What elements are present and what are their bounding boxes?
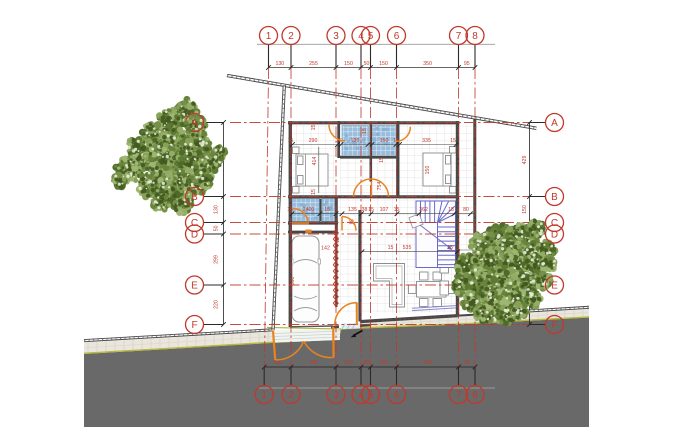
svg-text:350: 350 — [423, 360, 432, 366]
svg-text:220: 220 — [214, 300, 220, 309]
svg-text:255: 255 — [309, 360, 318, 366]
svg-text:15: 15 — [388, 245, 394, 251]
svg-text:15: 15 — [379, 157, 385, 163]
svg-text:8: 8 — [472, 31, 478, 42]
svg-text:B: B — [191, 192, 198, 203]
svg-text:142: 142 — [321, 246, 330, 252]
svg-text:50: 50 — [214, 225, 220, 231]
svg-text:6: 6 — [394, 390, 400, 401]
svg-text:E: E — [191, 281, 198, 292]
svg-text:D: D — [551, 230, 558, 241]
svg-text:1: 1 — [266, 31, 272, 42]
svg-text:15: 15 — [287, 207, 293, 213]
svg-text:130: 130 — [214, 205, 220, 214]
svg-text:50: 50 — [364, 360, 370, 366]
svg-text:350: 350 — [423, 61, 432, 67]
svg-text:135: 135 — [348, 207, 357, 213]
svg-text:255: 255 — [309, 61, 318, 67]
svg-text:15: 15 — [368, 207, 374, 213]
svg-text:5: 5 — [368, 390, 374, 401]
svg-text:150: 150 — [344, 61, 353, 67]
svg-text:C: C — [551, 218, 558, 229]
svg-text:150: 150 — [379, 360, 388, 366]
svg-text:1: 1 — [261, 390, 267, 401]
svg-text:15: 15 — [324, 207, 330, 213]
svg-text:15: 15 — [447, 245, 453, 251]
svg-text:3: 3 — [333, 390, 339, 401]
svg-text:15: 15 — [394, 207, 400, 213]
svg-text:80: 80 — [463, 207, 469, 213]
svg-text:D: D — [191, 230, 198, 241]
svg-text:299: 299 — [214, 255, 220, 264]
svg-text:15: 15 — [311, 189, 317, 195]
svg-text:8: 8 — [472, 390, 478, 401]
svg-text:150: 150 — [344, 360, 353, 366]
svg-text:130: 130 — [275, 61, 284, 67]
svg-text:150: 150 — [425, 166, 431, 175]
svg-text:150: 150 — [380, 138, 389, 144]
svg-text:2400: 2400 — [303, 207, 315, 213]
svg-text:335: 335 — [422, 138, 431, 144]
svg-text:414: 414 — [312, 157, 318, 166]
svg-text:7: 7 — [456, 31, 462, 42]
svg-text:2: 2 — [288, 31, 294, 42]
svg-text:15: 15 — [450, 138, 456, 144]
svg-text:C: C — [191, 218, 198, 229]
svg-text:B: B — [551, 192, 558, 203]
svg-text:7: 7 — [456, 390, 462, 401]
svg-text:F: F — [191, 320, 197, 331]
svg-text:38: 38 — [362, 207, 368, 213]
svg-text:535: 535 — [403, 245, 412, 251]
svg-text:5: 5 — [368, 31, 374, 42]
svg-text:95: 95 — [464, 360, 470, 366]
svg-text:560: 560 — [290, 277, 296, 286]
svg-text:362: 362 — [419, 207, 428, 213]
svg-text:A: A — [191, 118, 198, 129]
svg-text:F: F — [551, 320, 557, 331]
svg-text:15: 15 — [448, 207, 454, 213]
svg-text:95: 95 — [464, 61, 470, 67]
svg-text:15: 15 — [311, 125, 317, 131]
svg-text:290: 290 — [309, 138, 318, 144]
svg-text:150: 150 — [522, 205, 528, 214]
svg-text:6: 6 — [394, 31, 400, 42]
svg-text:107: 107 — [380, 207, 389, 213]
svg-text:50: 50 — [364, 61, 370, 67]
svg-text:E: E — [551, 281, 558, 292]
svg-text:3: 3 — [333, 31, 339, 42]
svg-text:15: 15 — [288, 138, 294, 144]
svg-text:429: 429 — [522, 156, 528, 165]
svg-text:150: 150 — [379, 61, 388, 67]
svg-text:A: A — [551, 118, 558, 129]
svg-text:150: 150 — [273, 360, 282, 366]
svg-text:15: 15 — [362, 128, 368, 134]
svg-text:135: 135 — [351, 138, 360, 144]
svg-text:2: 2 — [288, 390, 294, 401]
